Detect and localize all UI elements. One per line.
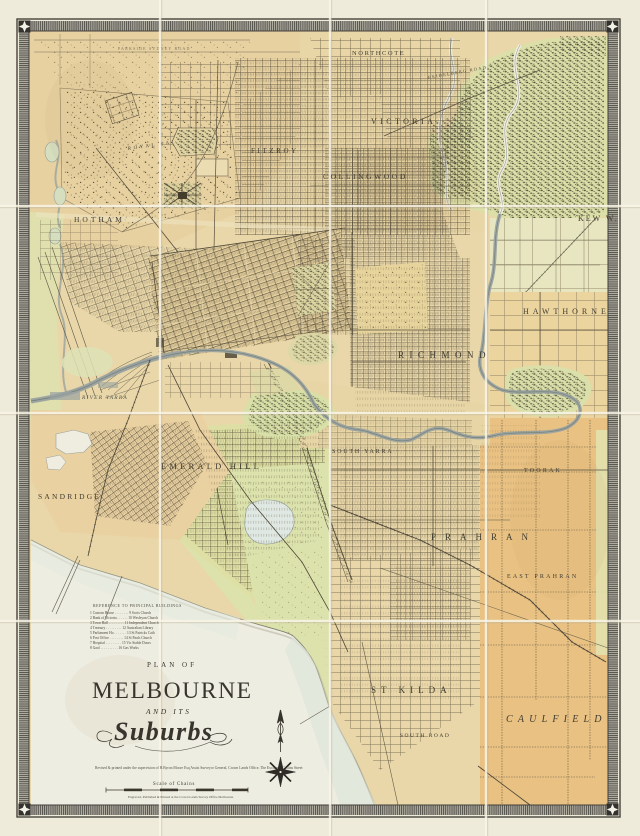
svg-text:ST KILDA: ST KILDA (371, 685, 452, 695)
svg-text:6 Post Office . . . . . . . .: 6 Post Office . . . . . . . . 14 St Paul… (90, 636, 152, 640)
svg-text:CAULFIELD: CAULFIELD (506, 714, 607, 725)
svg-text:Suburbs: Suburbs (114, 717, 213, 746)
svg-text:KEW W.: KEW W. (578, 214, 619, 223)
svg-text:TOORAK: TOORAK (524, 468, 562, 474)
svg-text:SOUTH YARRA: SOUTH YARRA (332, 449, 393, 455)
svg-text:AND ITS: AND ITS (145, 707, 192, 716)
svg-text:VICTORIA: VICTORIA (371, 117, 436, 126)
svg-text:Scale of Chains: Scale of Chains (153, 782, 195, 787)
svg-text:PARKSIDE SYDNEY ROAD: PARKSIDE SYDNEY ROAD (118, 46, 191, 51)
svg-text:7 Hospital . . . . . . . . .: 7 Hospital . . . . . . . . . 15 Vic Stab… (90, 641, 152, 645)
svg-text:3 Town Hall . . . . . . . . .: 3 Town Hall . . . . . . . . . 11 Indepen… (90, 621, 159, 625)
svg-text:RIVER YARRA: RIVER YARRA (81, 395, 128, 401)
svg-text:RICHMOND: RICHMOND (398, 350, 491, 360)
svg-text:1 Custom House . . . . . . .: 1 Custom House . . . . . . . . 9 Scots C… (90, 611, 151, 615)
svg-text:HAWTHORNE: HAWTHORNE (523, 307, 610, 316)
svg-text:SANDRIDGE: SANDRIDGE (38, 492, 101, 501)
svg-text:EMERALD HILL: EMERALD HILL (161, 461, 262, 471)
svg-text:MELBOURNE: MELBOURNE (92, 678, 253, 704)
svg-text:PLAN OF: PLAN OF (147, 661, 197, 669)
svg-text:EAST PRAHRAN: EAST PRAHRAN (507, 574, 578, 580)
svg-text:4 Treasury . . . . . . . . .: 4 Treasury . . . . . . . . . 12 Australi… (90, 626, 153, 630)
svg-text:NORTHCOTE: NORTHCOTE (352, 50, 405, 57)
svg-text:HOTHAM: HOTHAM (74, 215, 125, 224)
svg-text:REFERENCE TO PRINCIPAL BUILDIN: REFERENCE TO PRINCIPAL BUILDINGS (93, 603, 182, 608)
svg-text:PRAHRAN: PRAHRAN (431, 532, 537, 542)
svg-text:COLLINGWOOD: COLLINGWOOD (323, 172, 408, 181)
svg-text:2 Bank of Victoria . . . . .: 2 Bank of Victoria . . . . . . 10 Wesley… (90, 616, 158, 620)
svg-text:8 Gaol . . . . . . . . . . 16: 8 Gaol . . . . . . . . . . 16 Gas Works (90, 646, 139, 650)
svg-text:FITZROY: FITZROY (251, 147, 299, 155)
svg-text:SOUTH ROAD: SOUTH ROAD (400, 733, 450, 739)
svg-text:5 Parliament Ho . . . . . . .: 5 Parliament Ho . . . . . . . 13 St Patr… (90, 631, 155, 635)
